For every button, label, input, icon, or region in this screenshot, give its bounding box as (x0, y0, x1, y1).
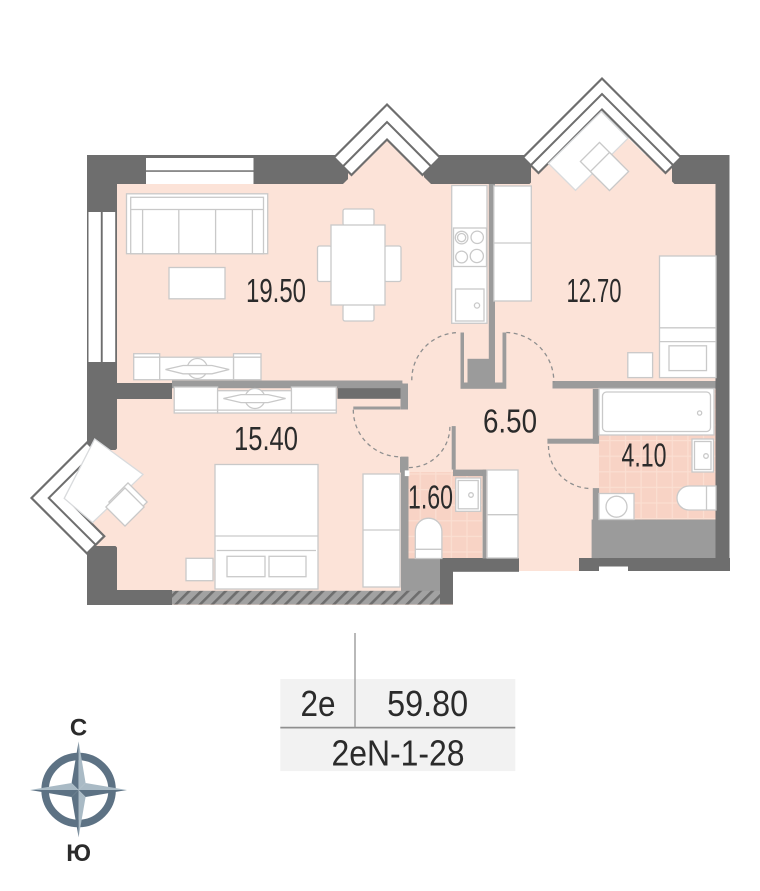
svg-text:Ю: Ю (66, 840, 91, 867)
svg-text:19.50: 19.50 (246, 272, 306, 309)
svg-text:12.70: 12.70 (567, 272, 622, 309)
svg-text:15.40: 15.40 (234, 420, 298, 457)
svg-text:59.80: 59.80 (387, 683, 468, 724)
svg-text:1.60: 1.60 (408, 479, 453, 516)
svg-text:С: С (70, 715, 87, 742)
svg-text:2еN-1-28: 2еN-1-28 (332, 733, 465, 774)
svg-text:4.10: 4.10 (622, 437, 667, 474)
svg-text:6.50: 6.50 (483, 403, 537, 440)
svg-text:2е: 2е (301, 683, 336, 724)
